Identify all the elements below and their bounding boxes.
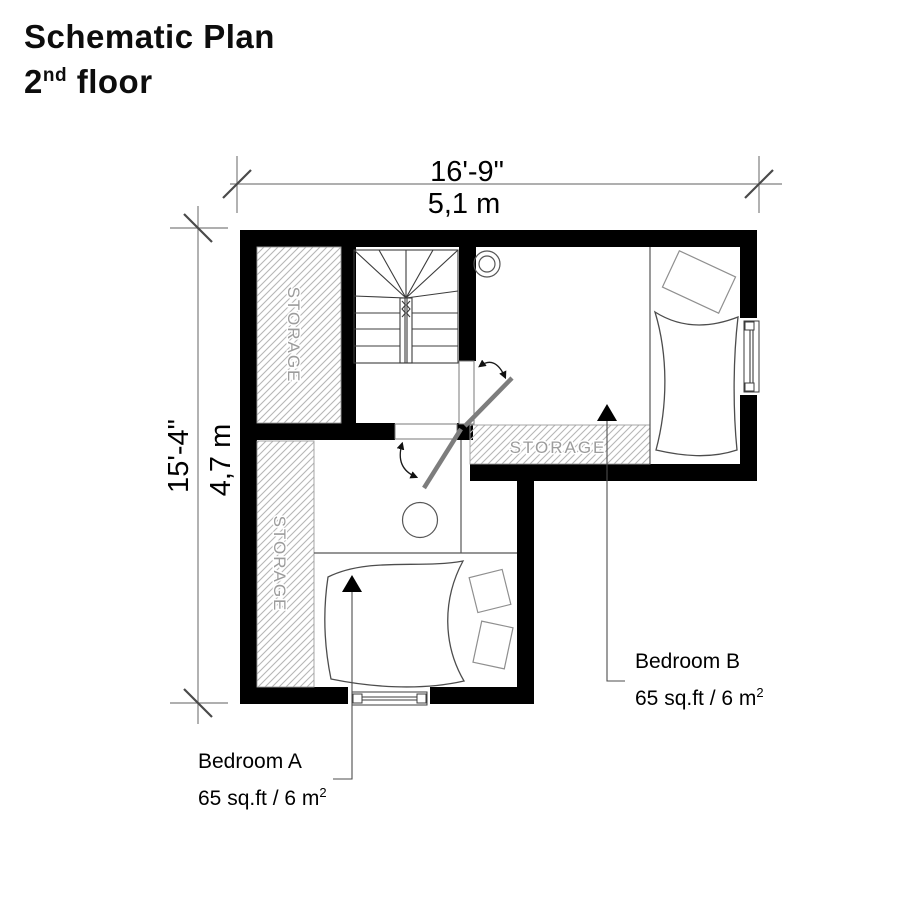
storage-label-upper-left: STORAGE <box>284 287 303 384</box>
dimension-left-imperial: 15'-4" <box>163 419 195 493</box>
wall-bedroom-b-bottom <box>470 464 757 481</box>
ordinal-suffix: nd <box>43 65 67 86</box>
floor-partition-lines <box>314 247 650 553</box>
storage-label-lower-left: STORAGE <box>270 516 289 613</box>
pillow <box>662 251 735 313</box>
bed-blanket <box>655 312 738 456</box>
stair-straight-treads <box>354 313 458 346</box>
window-bedroom-b <box>744 321 759 392</box>
door-opening-bedroom-b <box>459 361 474 424</box>
dimension-top-metric: 5,1 m <box>428 188 501 220</box>
storage-label-bedroom-b: STORAGE <box>510 438 607 457</box>
leader-arrowhead <box>597 404 617 421</box>
window-jamb <box>353 694 362 703</box>
ceiling-fixture <box>474 251 500 277</box>
label-bedroom-a: Bedroom A 65 sq.ft / 6 m2 <box>198 746 327 814</box>
room-area: 65 sq.ft / 6 m2 <box>198 777 327 814</box>
window-frame <box>352 692 427 705</box>
dimension-top-imperial: 16'-9" <box>430 156 504 188</box>
room-name: Bedroom A <box>198 746 327 777</box>
stair-newel <box>400 298 412 363</box>
title-line1: Schematic Plan <box>24 17 275 56</box>
wall-stairhall-right <box>459 230 476 361</box>
dimension-left: 15'-4" 4,7 m <box>163 206 237 724</box>
door-opening-bedroom-a <box>395 424 457 439</box>
wall-middle-vertical <box>517 464 534 704</box>
fixture-outer-circle <box>474 251 500 277</box>
label-bedroom-b: Bedroom B 65 sq.ft / 6 m2 <box>635 646 764 714</box>
wall-bottom-right <box>430 687 534 704</box>
pillow <box>473 621 513 669</box>
dimension-top: 16'-9" 5,1 m <box>223 156 782 220</box>
stair-newel-lines <box>405 298 407 363</box>
window-jamb <box>417 694 426 703</box>
door-swing-arrow <box>480 362 505 377</box>
fixture-inner-circle <box>479 256 495 272</box>
wall-hall-bottom <box>240 423 395 440</box>
wall-top <box>240 230 757 247</box>
wall-right-upper <box>740 247 757 318</box>
window-bedroom-a <box>352 692 427 705</box>
dimension-left-metric: 4,7 m <box>205 424 237 497</box>
title-line2: 2nd floor <box>24 56 275 101</box>
room-area: 65 sq.ft / 6 m2 <box>635 677 764 714</box>
floor-plan: 16'-9" 5,1 m 15'-4" 4,7 m STORAGE STORAG… <box>0 0 900 900</box>
bed-bedroom-b <box>655 251 738 456</box>
stair-break-marks <box>402 301 410 317</box>
window-jamb <box>745 322 754 330</box>
page-title: Schematic Plan 2nd floor <box>24 17 275 101</box>
door-swing-arrow <box>400 444 416 477</box>
stair-winder-treads <box>354 250 458 298</box>
stool-circle <box>403 503 438 538</box>
window-jamb <box>745 383 754 391</box>
pillow <box>469 569 511 612</box>
staircase <box>354 250 458 363</box>
window-frame <box>744 321 759 392</box>
bed-blanket <box>325 561 464 687</box>
wall-bottom-left <box>240 687 348 704</box>
wall-left <box>240 230 257 704</box>
room-name: Bedroom B <box>635 646 764 677</box>
